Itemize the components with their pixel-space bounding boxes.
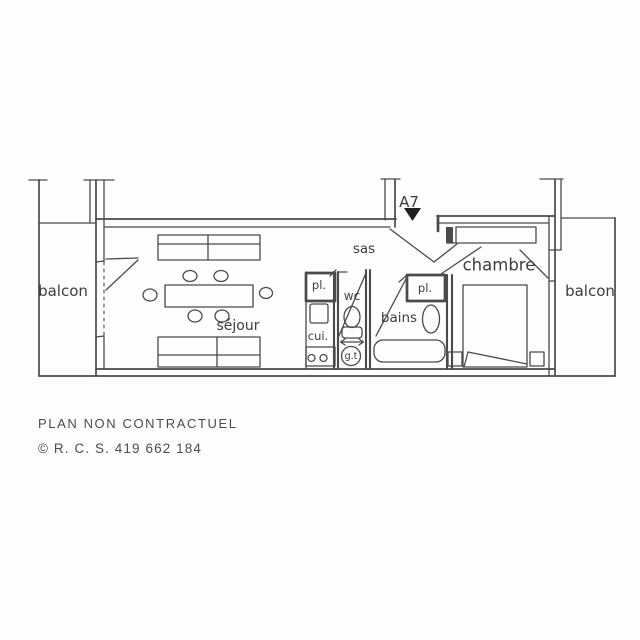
- sejour-label: séjour: [217, 318, 260, 334]
- toilet-base: [342, 327, 362, 338]
- chair: [143, 289, 157, 301]
- left-door-jamb-bottom: [96, 336, 104, 337]
- plan-disclaimer: PLAN NON CONTRACTUEL: [38, 416, 238, 431]
- sejour-balcony-door-swing: [106, 260, 138, 290]
- washbasin: [423, 305, 440, 333]
- nightstand: [448, 352, 462, 366]
- entry-door-leaf: [390, 229, 434, 262]
- sejour-balcony-door-leaf: [106, 258, 138, 259]
- bed: [463, 285, 527, 367]
- chair: [183, 271, 197, 282]
- chair: [260, 288, 273, 299]
- left-door-jamb-top: [96, 261, 104, 262]
- plan-registration: © R. C. S. 419 662 184: [38, 441, 202, 456]
- chair: [214, 271, 228, 282]
- bathroom: pl. bains: [374, 275, 452, 369]
- bed-fold-line-2: [464, 352, 468, 367]
- burner: [320, 355, 327, 362]
- bedroom: chambre: [441, 227, 548, 367]
- bathtub: [374, 340, 445, 362]
- chambre-label: chambre: [463, 256, 536, 275]
- bains-closet-label: pl.: [418, 281, 432, 295]
- sejour-room: séjour: [106, 235, 273, 367]
- sofa-bottom: [158, 337, 260, 367]
- kitchen-sink: [310, 304, 328, 323]
- chair: [188, 310, 202, 322]
- bedroom-closet: [456, 227, 536, 243]
- bains-door-swing: [376, 277, 407, 336]
- wc-room: wc g.t: [338, 270, 370, 369]
- bed-fold-line: [468, 352, 527, 364]
- entry-door-swing: [434, 244, 457, 262]
- entry-arrow-icon: [404, 208, 421, 221]
- sofa-top: [158, 235, 260, 260]
- sas-label: sas: [353, 241, 375, 257]
- kitchen: pl. cui.: [306, 270, 338, 369]
- balcon-left-label: balcon: [38, 282, 88, 300]
- floor-plan-drawing: balcon balcon: [0, 0, 640, 640]
- kitchen-closet-label: pl.: [312, 278, 326, 292]
- kitchen-label: cui.: [308, 329, 328, 343]
- burner: [308, 355, 315, 362]
- balcon-right-label: balcon: [565, 282, 615, 300]
- dining-table: [165, 285, 253, 307]
- nightstand: [530, 352, 544, 366]
- bains-label: bains: [381, 310, 417, 326]
- floor-plan-page: balcon balcon: [0, 0, 640, 640]
- duct-label: g.t: [345, 351, 358, 362]
- closet-jamb: [446, 227, 453, 243]
- balcony-right: balcon: [561, 218, 615, 376]
- balcony-left: balcon: [29, 180, 96, 376]
- wc-label: wc: [344, 289, 360, 303]
